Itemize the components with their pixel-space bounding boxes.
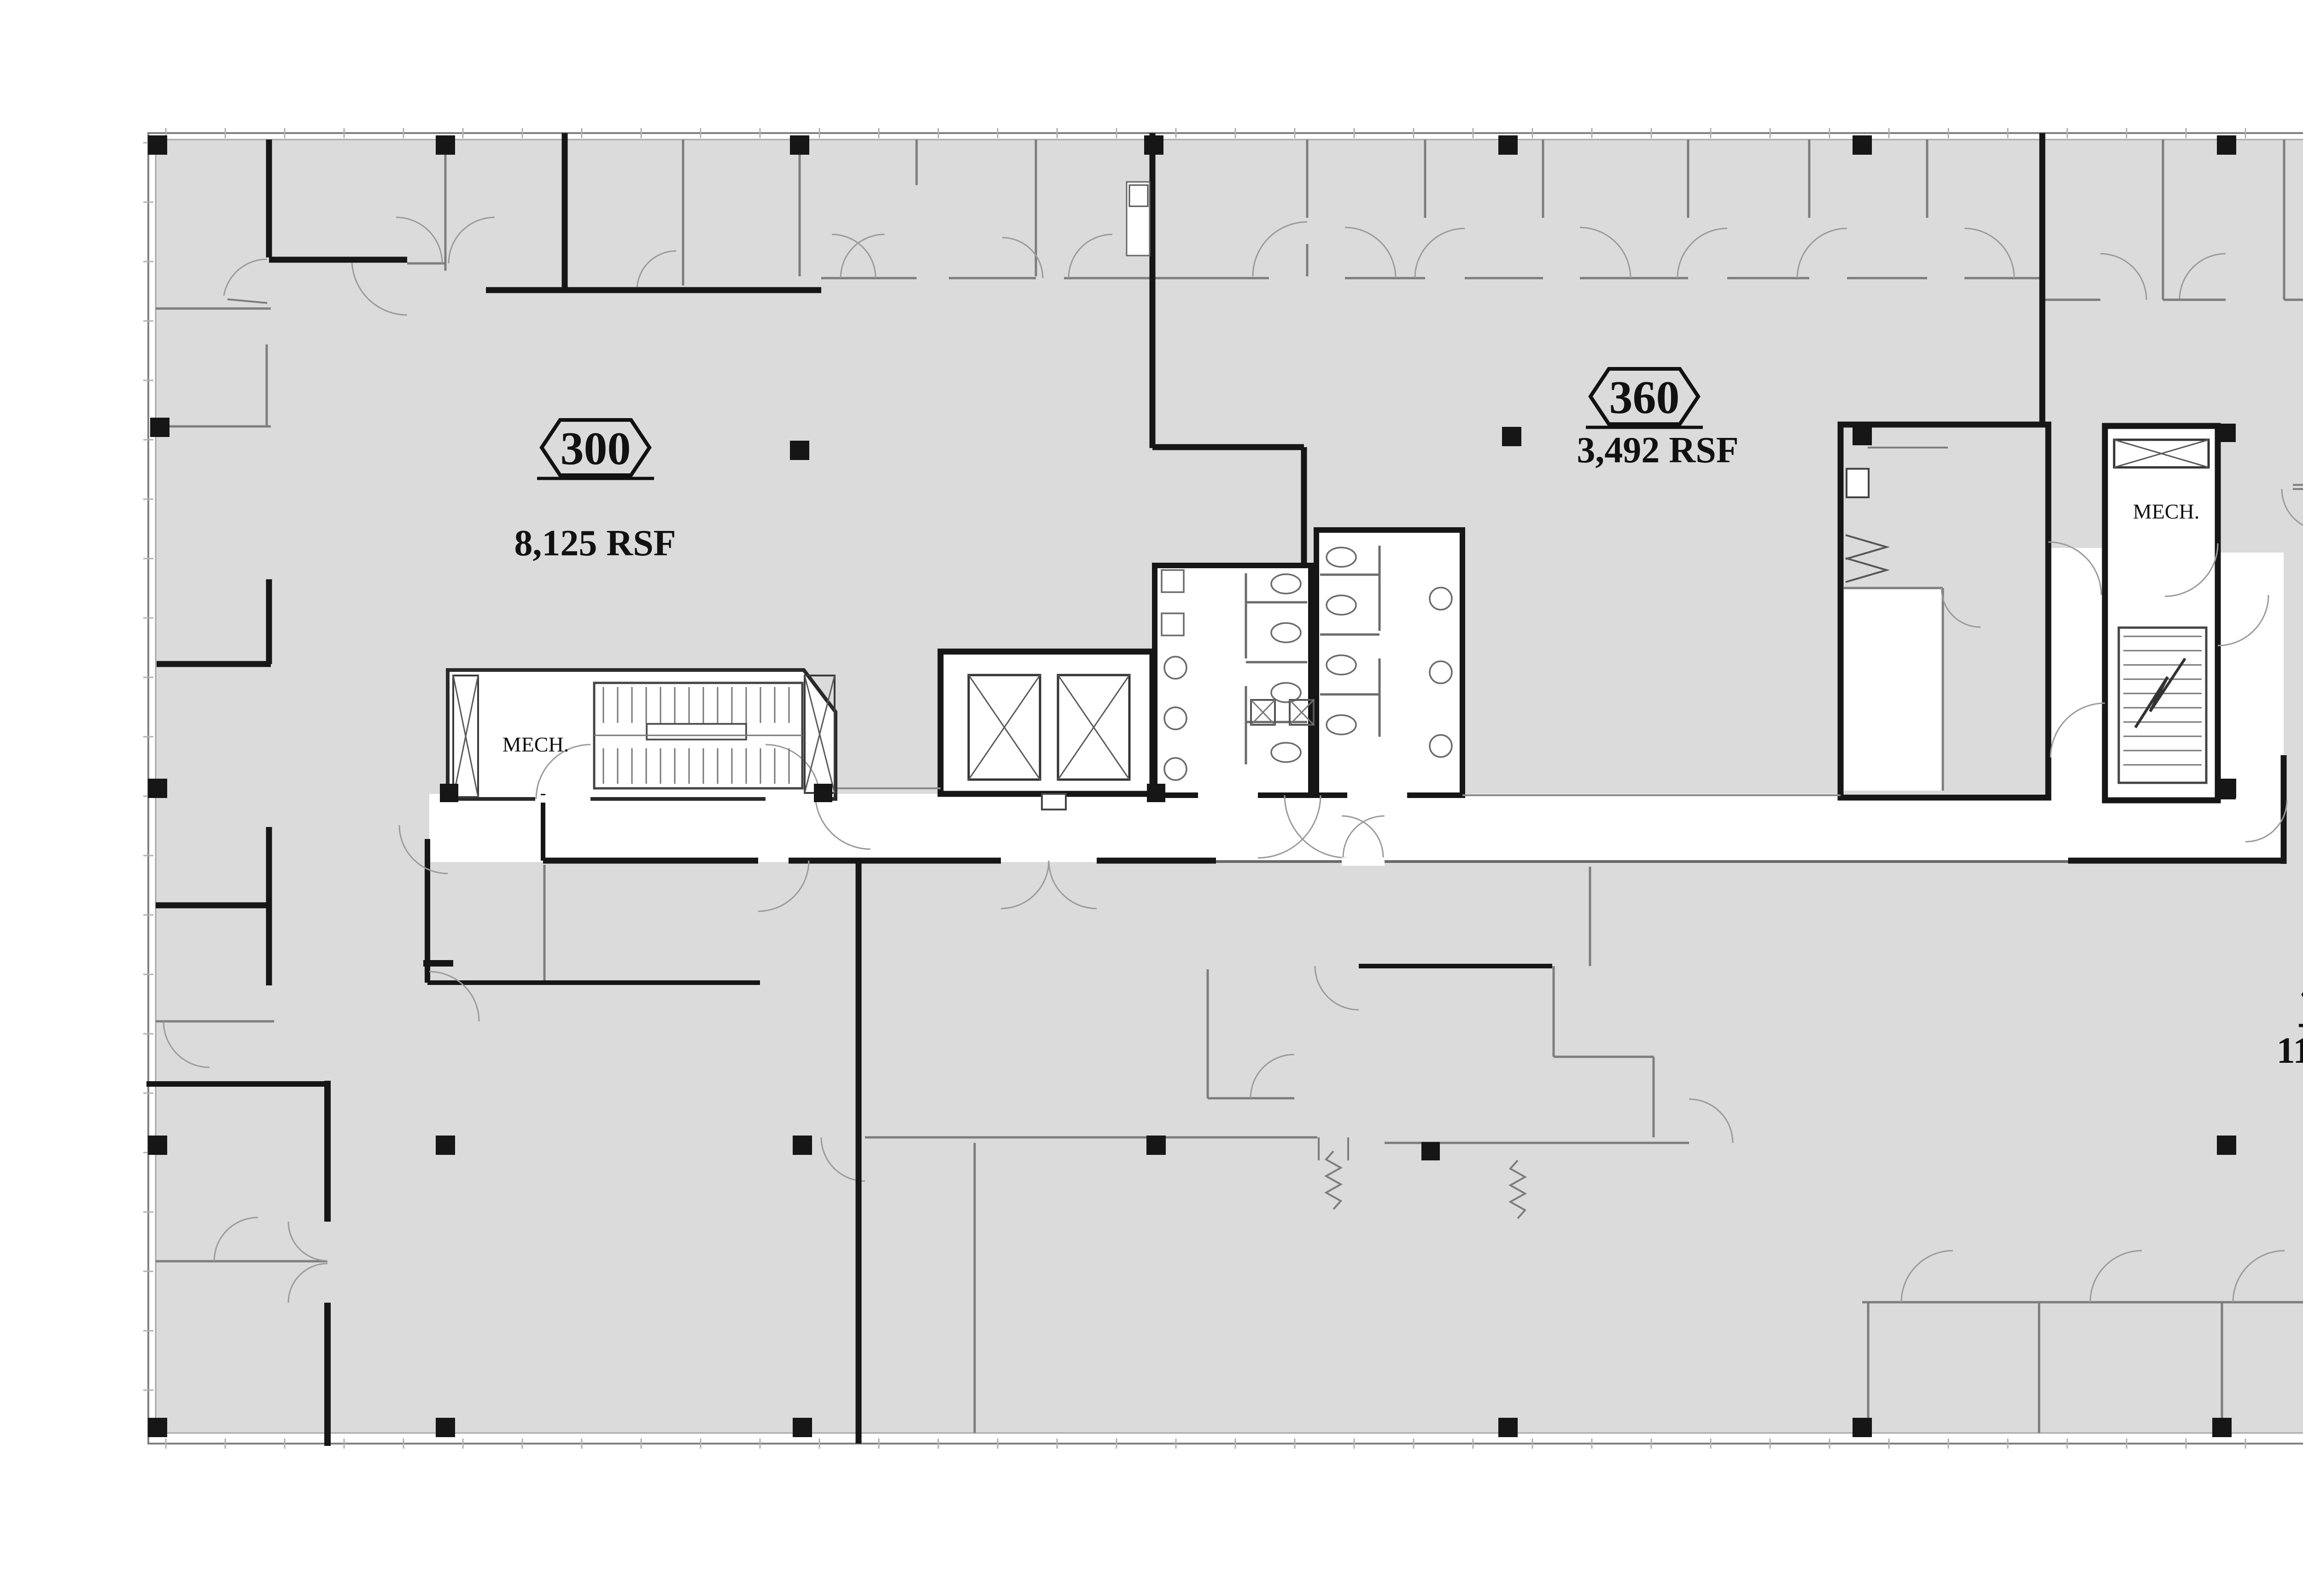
svg-text:3,492 RSF: 3,492 RSF: [1577, 430, 1738, 471]
svg-text:360: 360: [1609, 372, 1680, 424]
svg-text:300: 300: [561, 423, 631, 475]
svg-text:MECH.: MECH.: [503, 733, 569, 756]
svg-text:11,406 RSF: 11,406 RSF: [2277, 1031, 2303, 1071]
svg-text:MECH.: MECH.: [2133, 500, 2199, 523]
svg-text:8,125 RSF: 8,125 RSF: [514, 523, 676, 564]
